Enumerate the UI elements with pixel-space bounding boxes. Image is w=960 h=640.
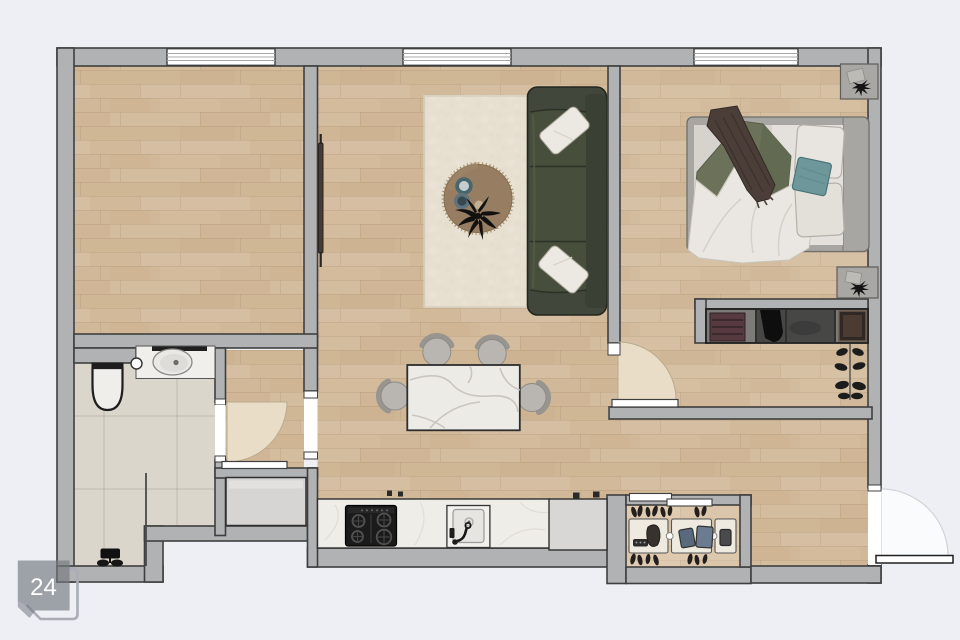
svg-text:24: 24: [30, 574, 57, 601]
